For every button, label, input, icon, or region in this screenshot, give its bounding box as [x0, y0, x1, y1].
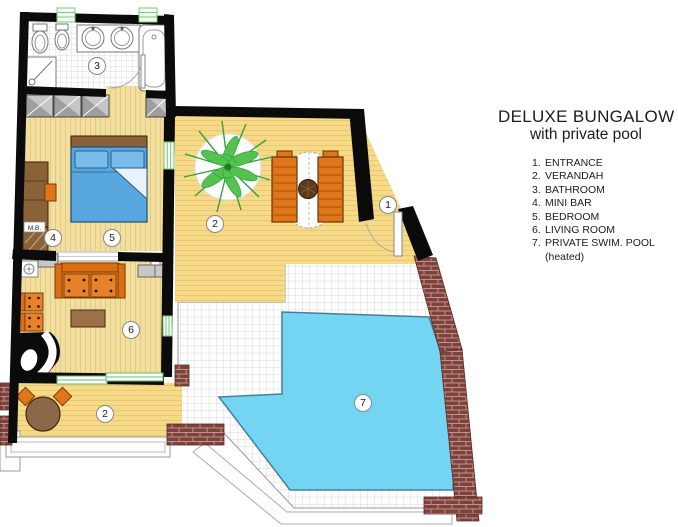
bidet	[55, 24, 69, 50]
legend-item-entrance: 1.ENTRANCE	[532, 157, 674, 170]
info-panel: DELUXE BUNGALOW with private pool 1.ENTR…	[498, 107, 674, 264]
page-title: DELUXE BUNGALOW	[498, 107, 674, 126]
double-sink-vanity	[77, 25, 140, 52]
marker-living-room: 6	[123, 322, 140, 339]
brick-piece-small	[175, 365, 189, 386]
steps	[0, 431, 170, 471]
legend-note: (heated)	[545, 251, 674, 264]
living-window-side	[163, 316, 172, 336]
marker-pool: 7	[355, 395, 372, 412]
minibar-label: M.B.	[28, 225, 42, 232]
svg-text:5: 5	[109, 232, 115, 244]
legend-item-living-room: 6.LIVING ROOM	[532, 224, 674, 237]
screenshot: M.B.	[0, 0, 678, 527]
svg-text:4: 4	[50, 232, 56, 244]
wardrobe-1	[26, 95, 53, 117]
wardrobe-2	[54, 95, 81, 117]
svg-text:6: 6	[128, 324, 134, 336]
living-window-bottom-2	[106, 373, 163, 381]
sun-lounger-1	[272, 151, 297, 222]
shower-tray	[25, 57, 56, 90]
coffee-table	[71, 310, 105, 327]
svg-text:7: 7	[360, 397, 366, 409]
entrance-door-leaf	[394, 212, 402, 256]
bed	[71, 136, 147, 222]
svg-text:2: 2	[102, 408, 108, 420]
bathroom-window-1	[57, 8, 75, 22]
legend-item-pool: 7.PRIVATE SWIM. POOL	[532, 237, 674, 250]
bed-headboard	[71, 136, 147, 147]
marker-bathroom: 3	[89, 58, 106, 75]
legend-item-verandah: 2.VERANDAH	[532, 170, 674, 183]
dining-table	[26, 397, 60, 431]
bed-pillow-left	[75, 151, 108, 168]
wardrobes	[26, 95, 170, 117]
page-subtitle: with private pool	[498, 126, 674, 144]
marker-verandah-lower: 2	[97, 406, 114, 423]
bed-pillow-right	[111, 151, 144, 168]
wall-divider-right	[118, 252, 164, 262]
brick-piece-mid	[167, 424, 224, 445]
wall-bathroom-bottom-right	[146, 90, 168, 99]
armchair-1	[19, 293, 43, 311]
living-window-bottom-1	[57, 376, 107, 384]
svg-text:1: 1	[385, 199, 391, 211]
bedroom-window	[164, 142, 174, 169]
armchair-2	[19, 313, 43, 331]
legend-item-bathroom: 3.BATHROOM	[532, 184, 674, 197]
toilet	[32, 24, 48, 53]
brick-strip-bottom	[424, 497, 482, 514]
wall-divider-left	[12, 249, 56, 261]
legend: 1.ENTRANCE 2.VERANDAH 3.BATHROOM 4.MINI …	[532, 157, 674, 264]
bathroom-window-2	[139, 8, 157, 22]
svg-text:3: 3	[94, 60, 100, 72]
marker-mini-bar: 4	[45, 230, 62, 247]
marker-bedroom: 5	[104, 230, 121, 247]
minibar-stool	[45, 184, 56, 201]
wardrobe-3	[82, 95, 109, 117]
side-table	[20, 261, 38, 277]
svg-text:2: 2	[212, 218, 218, 230]
lounger-table	[299, 180, 318, 199]
legend-item-mini-bar: 4.MINI BAR	[532, 197, 674, 210]
legend-item-bedroom: 5.BEDROOM	[532, 211, 674, 224]
marker-entrance: 1	[380, 197, 397, 214]
sun-lounger-2	[318, 151, 343, 222]
minibar-cabinet	[23, 162, 48, 227]
sofa	[55, 263, 125, 298]
fan-icon	[24, 264, 34, 274]
wall-bathroom-right	[164, 14, 176, 117]
marker-verandah-upper: 2	[207, 216, 224, 233]
